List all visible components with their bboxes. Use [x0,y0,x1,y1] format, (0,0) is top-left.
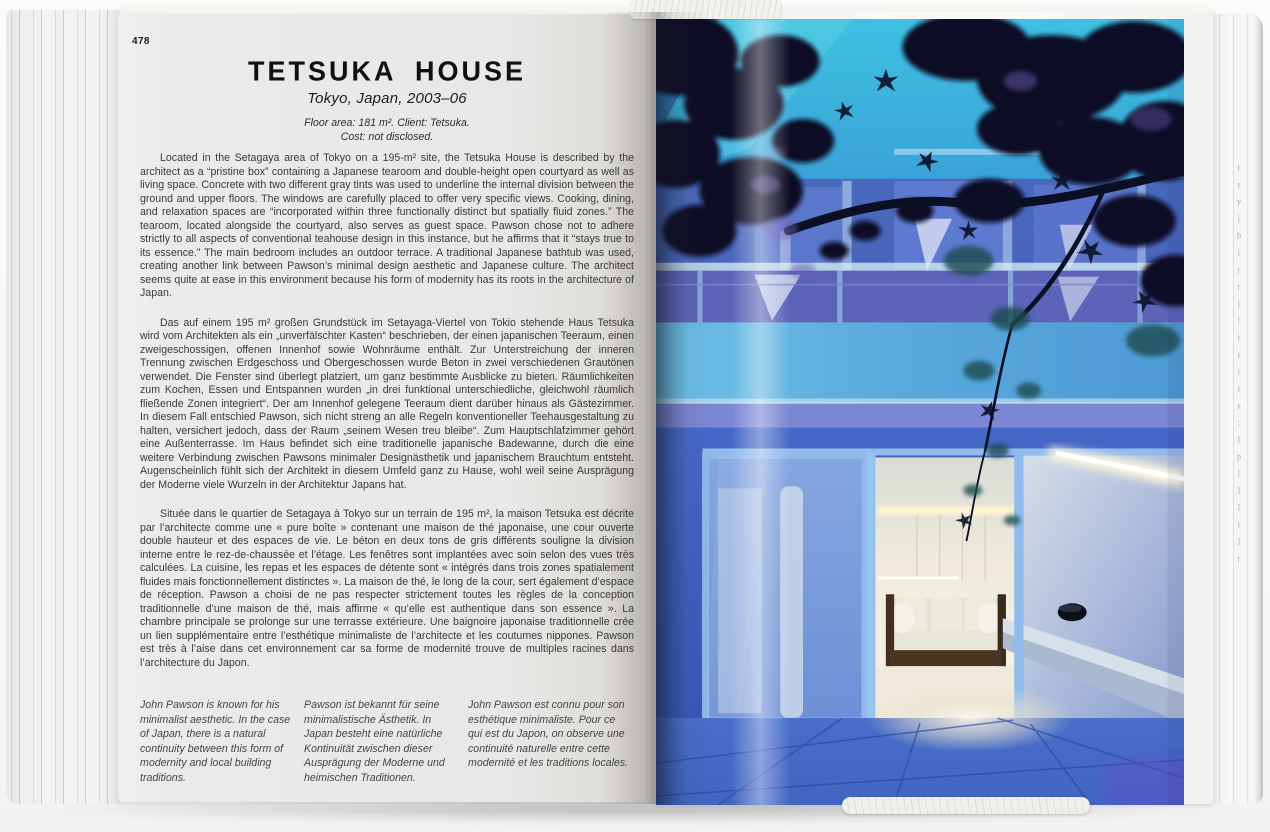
fore-edge-glyph: r [1238,282,1241,291]
fore-edge-glyph: s [1237,180,1240,189]
fore-edge-glyph: : [1238,418,1240,427]
caption-french: John Pawson est connu pour son esthétiqu… [468,698,632,786]
fore-edge-glyph: 1 [1237,537,1241,546]
mullion-right [1014,451,1023,723]
left-page-stack [6,10,120,804]
interior-room [873,457,1018,721]
tetsuka-house-photo [656,19,1184,805]
fore-edge-glyph: j [1238,299,1240,308]
paragraph-french: Située dans le quartier de Setagaya à To… [140,508,634,670]
fore-edge-glyph: s [1237,401,1240,410]
left-page: 478 TETSUKA HOUSE Tokyo, Japan, 2003–06 … [118,14,655,802]
book-spread: 478 TETSUKA HOUSE Tokyo, Japan, 2003–06 … [0,0,1270,832]
fore-edge-glyph: 1 [1237,435,1241,444]
fore-edge-glyph: ! [1238,316,1241,325]
title-block: TETSUKA HOUSE Tokyo, Japan, 2003–06 Floo… [140,56,634,144]
page-subtitle: Tokyo, Japan, 2003–06 [140,90,634,107]
fore-edge-glyph: b [1237,231,1241,240]
light-pool [866,684,1073,752]
fore-edge-glyph: r [1238,554,1241,563]
fore-edge-glyph: s [1237,350,1240,359]
fore-edge-glyph: y [1237,197,1241,206]
paragraph-english: Located in the Setagaya area of Tokyo on… [140,152,634,301]
fore-edge-glyph: t [1238,333,1240,342]
fore-edge-glyph: i [1238,248,1240,257]
fore-edge-glyph: s [1237,384,1240,393]
meta-floor-area: Floor area: 181 m². Client: Tetsuka. [140,117,634,131]
photo-right-fade [1167,19,1184,805]
fore-edge-glyph: i [1238,367,1240,376]
body-text-column: Located in the Setagaya area of Tokyo on… [140,152,634,686]
fore-edge-glyph: t [1238,520,1240,529]
photo-gutter-shadow [656,19,687,805]
meta-cost: Cost: not disclosed. [140,131,634,145]
fore-edge-glyph: r [1238,265,1241,274]
caption-english: John Pawson is known for his minimalist … [140,698,292,786]
right-page-stack: rsyjbirrj!tsiss:1pl11t1r [1213,14,1263,804]
project-meta: Floor area: 181 m². Client: Tetsuka. Cos… [140,117,634,144]
black-bowl [1058,603,1087,621]
caption-german: Pawson ist bekannt für seine minimalisti… [304,698,456,786]
page-title: TETSUKA HOUSE [140,55,634,86]
sofa-wood-base [890,650,1002,666]
page-glare [731,19,791,805]
page-number: 478 [132,36,150,47]
fore-edge-showthrough: rsyjbirrj!tsiss:1pl11t1r [1233,164,1245,563]
fore-edge-glyph: r [1238,163,1241,172]
interior-cove-light [878,506,1015,515]
paragraph-german: Das auf einem 195 m² großen Grundstück i… [140,317,634,493]
fore-edge-glyph: p [1237,452,1241,461]
binding-stitch-bottom [842,797,1090,814]
fore-edge-glyph: l [1238,469,1240,478]
mullion-left [866,451,875,723]
fore-edge-glyph: j [1238,214,1240,223]
binding-stitch-top [630,0,782,19]
right-page [655,12,1213,804]
caption-row: John Pawson is known for his minimalist … [140,698,640,786]
fore-edge-glyph: 1 [1237,503,1241,512]
fore-edge-glyph: 1 [1237,486,1241,495]
